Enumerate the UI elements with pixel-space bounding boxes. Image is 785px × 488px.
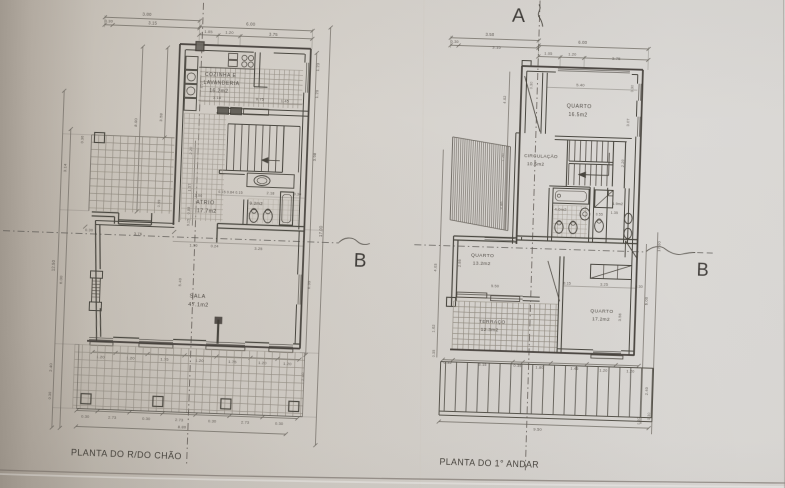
svg-text:3.15: 3.15 (148, 20, 157, 25)
svg-text:0.30: 0.30 (80, 136, 84, 144)
svg-text:SALA: SALA (190, 294, 206, 301)
svg-text:1.20: 1.20 (283, 361, 292, 366)
svg-text:2.40: 2.40 (48, 363, 53, 372)
svg-text:1.20: 1.20 (568, 52, 576, 56)
svg-text:1.20: 1.20 (195, 358, 204, 363)
svg-text:0.15: 0.15 (563, 281, 571, 285)
svg-text:13.2m2: 13.2m2 (473, 261, 491, 268)
svg-text:0.24: 0.24 (211, 244, 219, 248)
svg-text:3.15: 3.15 (492, 45, 501, 50)
svg-text:2.73: 2.73 (108, 416, 116, 420)
svg-text:A: A (512, 5, 526, 27)
svg-text:3.50: 3.50 (485, 32, 495, 37)
svg-text:0.35: 0.35 (432, 350, 436, 358)
svg-text:6.39: 6.39 (306, 280, 311, 289)
svg-text:0.75: 0.75 (256, 97, 264, 101)
svg-text:COZINHA E: COZINHA E (205, 72, 237, 79)
svg-text:ATRIO: ATRIO (196, 200, 215, 207)
svg-text:5.40: 5.40 (576, 82, 585, 87)
svg-text:1.45: 1.45 (281, 99, 289, 103)
svg-text:1.20: 1.20 (314, 89, 319, 98)
svg-text:TERRAÇO: TERRAÇO (479, 319, 506, 326)
svg-text:3.25: 3.25 (254, 247, 262, 251)
svg-text:17.00: 17.00 (656, 240, 661, 252)
svg-text:2.73: 2.73 (241, 420, 249, 424)
svg-text:16.2m2: 16.2m2 (209, 88, 228, 95)
svg-text:4.02: 4.02 (503, 95, 507, 103)
svg-text:B: B (353, 251, 366, 272)
svg-text:1.62: 1.62 (432, 324, 436, 332)
svg-text:3.56: 3.56 (618, 313, 622, 321)
svg-text:3.18: 3.18 (213, 96, 221, 100)
svg-text:1.75: 1.75 (228, 359, 237, 364)
svg-text:1.05: 1.05 (544, 52, 552, 56)
svg-text:1.20: 1.20 (225, 30, 234, 35)
svg-text:6.00: 6.00 (246, 21, 256, 26)
svg-text:47.1m2: 47.1m2 (188, 302, 209, 309)
svg-text:0.99: 0.99 (157, 200, 161, 208)
svg-text:1.80: 1.80 (535, 366, 543, 370)
svg-text:12.50: 12.50 (51, 259, 56, 271)
svg-text:4.0m2: 4.0m2 (554, 207, 567, 212)
svg-text:0.30: 0.30 (142, 417, 150, 421)
svg-text:5.50: 5.50 (491, 284, 499, 288)
svg-text:6.00: 6.00 (578, 40, 588, 45)
svg-text:CIRCULAÇÃO: CIRCULAÇÃO (524, 152, 558, 159)
svg-text:17.7m2: 17.7m2 (197, 208, 217, 215)
svg-text:1.20: 1.20 (599, 369, 607, 373)
svg-text:10.5m2: 10.5m2 (527, 161, 545, 167)
svg-text:QUARTO: QUARTO (471, 252, 494, 259)
svg-text:9.50: 9.50 (533, 427, 542, 432)
svg-text:2.40: 2.40 (645, 387, 649, 395)
svg-text:QUARTO: QUARTO (567, 103, 592, 110)
svg-text:4.03: 4.03 (434, 263, 438, 271)
svg-text:QUARTO: QUARTO (590, 308, 613, 315)
svg-text:17.2m2: 17.2m2 (592, 316, 610, 323)
svg-text:3.58: 3.58 (158, 112, 163, 121)
svg-text:1.20: 1.20 (258, 360, 267, 365)
svg-text:0.30: 0.30 (630, 85, 634, 93)
svg-text:12.3m2: 12.3m2 (481, 327, 499, 334)
svg-text:1.75: 1.75 (160, 356, 169, 361)
svg-text:8.80: 8.80 (178, 424, 187, 429)
svg-text:17.00: 17.00 (318, 225, 323, 237)
svg-text:0.30: 0.30 (451, 40, 459, 44)
svg-text:0.30: 0.30 (275, 422, 283, 426)
svg-text:0.30: 0.30 (647, 412, 651, 420)
svg-text:0.30: 0.30 (105, 18, 114, 23)
svg-text:8.00: 8.00 (133, 117, 138, 126)
svg-text:6.00: 6.00 (644, 296, 649, 305)
svg-text:5.40: 5.40 (177, 277, 182, 286)
svg-text:3.80: 3.80 (142, 12, 152, 17)
svg-text:0.15: 0.15 (186, 219, 190, 226)
svg-text:0.30: 0.30 (294, 192, 302, 196)
svg-text:3.25: 3.25 (600, 283, 608, 287)
svg-text:3.75: 3.75 (269, 32, 278, 37)
svg-text:0.55: 0.55 (596, 212, 603, 216)
svg-text:2.73: 2.73 (175, 418, 183, 422)
svg-text:1.9m2: 1.9m2 (612, 202, 623, 206)
svg-text:3.75: 3.75 (612, 56, 621, 61)
svg-text:B: B (696, 260, 709, 280)
svg-text:0.30: 0.30 (529, 82, 533, 90)
svg-text:1.90: 1.90 (189, 243, 197, 247)
svg-text:0.30: 0.30 (48, 392, 52, 400)
svg-text:1.05: 1.05 (204, 29, 213, 34)
svg-text:3.07: 3.07 (199, 81, 203, 88)
svg-text:0.30: 0.30 (85, 228, 93, 232)
svg-text:0.30: 0.30 (81, 415, 89, 419)
svg-text:1.57: 1.57 (188, 183, 192, 191)
svg-text:2.18: 2.18 (267, 191, 275, 195)
svg-text:9.2m2: 9.2m2 (250, 201, 264, 206)
svg-text:2.00: 2.00 (194, 194, 202, 198)
svg-text:1.35: 1.35 (611, 211, 618, 215)
svg-text:1.45: 1.45 (570, 367, 578, 371)
svg-text:3.14: 3.14 (62, 163, 67, 172)
svg-text:6.00: 6.00 (58, 275, 63, 284)
svg-text:3.76: 3.76 (134, 232, 142, 236)
svg-text:1.23: 1.23 (315, 62, 320, 71)
svg-text:3.98: 3.98 (312, 152, 317, 161)
svg-text:2.20: 2.20 (621, 159, 625, 167)
svg-text:3.07: 3.07 (626, 118, 630, 126)
svg-text:16.5m2: 16.5m2 (568, 112, 587, 119)
svg-text:0.30: 0.30 (208, 419, 216, 423)
svg-text:2.86: 2.86 (458, 259, 462, 267)
